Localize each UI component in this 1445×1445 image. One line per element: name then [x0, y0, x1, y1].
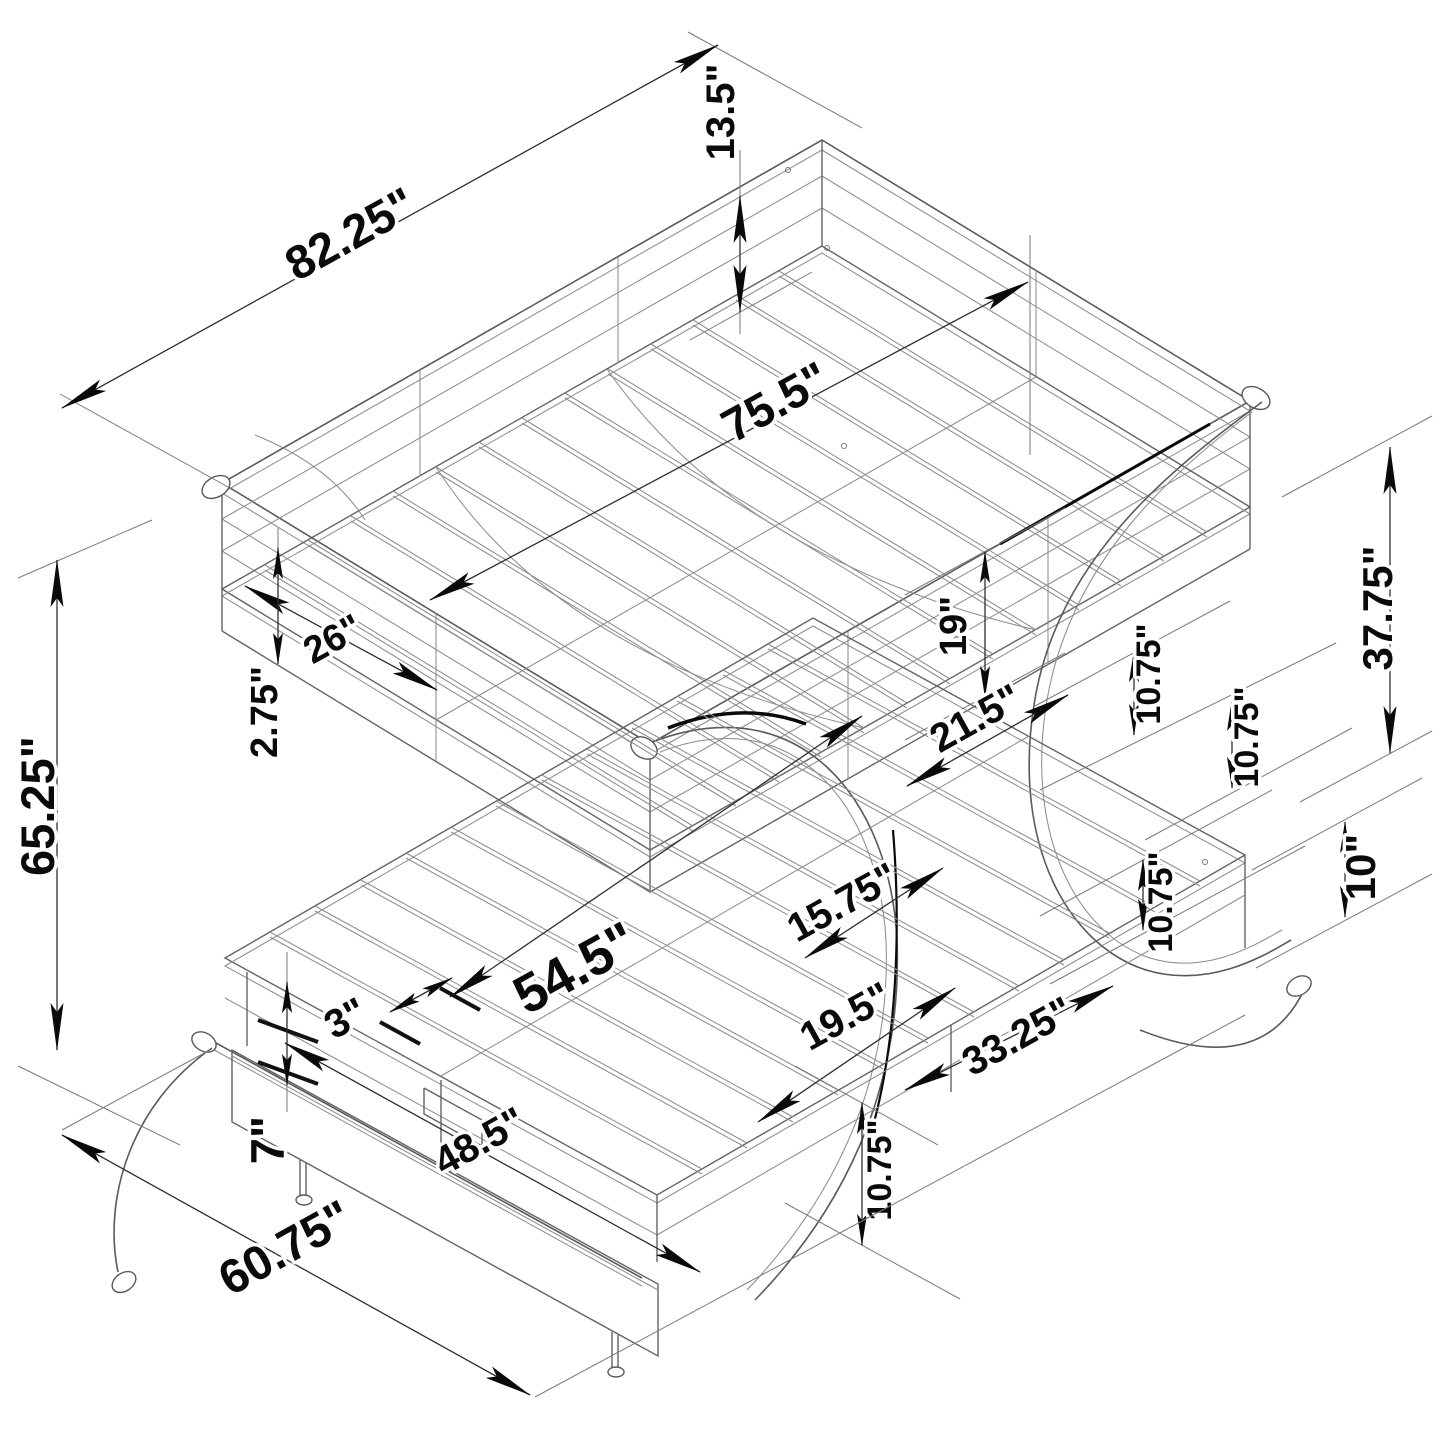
dim-19-5-label: 19.5"	[793, 974, 899, 1059]
dim-37-75: 37.75"	[1282, 416, 1432, 802]
dim-65-25-label: 65.25"	[11, 736, 64, 876]
dim-21-5-label: 21.5"	[923, 676, 1029, 761]
dim-10-75-a-label: 10.75"	[1130, 623, 1168, 724]
dim-7: 7"	[241, 952, 318, 1164]
dim-75-5-label: 75.5"	[712, 351, 837, 453]
drawing-sheet: 82.25" 13.5" 75.5" 26" 2.75"	[0, 0, 1445, 1445]
dim-2-75-label: 2.75"	[244, 666, 286, 758]
dim-10-75-d-label: 10.75"	[861, 1119, 899, 1220]
dim-15-75: 15.75"	[780, 855, 943, 958]
dim-60-75: 60.75"	[62, 1015, 1245, 1397]
dim-33-25: 33.25"	[905, 986, 1113, 1090]
dim-13-5: 13.5"	[690, 64, 812, 340]
dim-65-25: 65.25"	[11, 520, 180, 1145]
dim-33-25-label: 33.25"	[955, 989, 1080, 1085]
dim-10-75-b-label: 10.75"	[1228, 686, 1266, 787]
dim-26-label: 26"	[297, 607, 370, 673]
dim-7-label: 7"	[241, 1116, 294, 1164]
dim-13-5-label: 13.5"	[699, 64, 743, 161]
dim-10-label: 10"	[1337, 834, 1384, 901]
dim-54-5-label: 54.5"	[504, 910, 647, 1026]
dim-10: 10"	[1252, 778, 1432, 968]
bottom-bed-slats	[270, 644, 1200, 1174]
dim-82-25-label: 82.25"	[276, 176, 424, 290]
c-shaped-legs	[652, 402, 1291, 1300]
dim-3-label: 3"	[317, 989, 374, 1047]
top-bunk-slats	[265, 271, 1207, 831]
dim-10-75-c-label: 10.75"	[1142, 851, 1180, 952]
bunk-bed-dimension-diagram: 82.25" 13.5" 75.5" 26" 2.75"	[0, 0, 1445, 1445]
dim-37-75-label: 37.75"	[1354, 545, 1401, 670]
dim-19-label: 19"	[933, 596, 975, 656]
